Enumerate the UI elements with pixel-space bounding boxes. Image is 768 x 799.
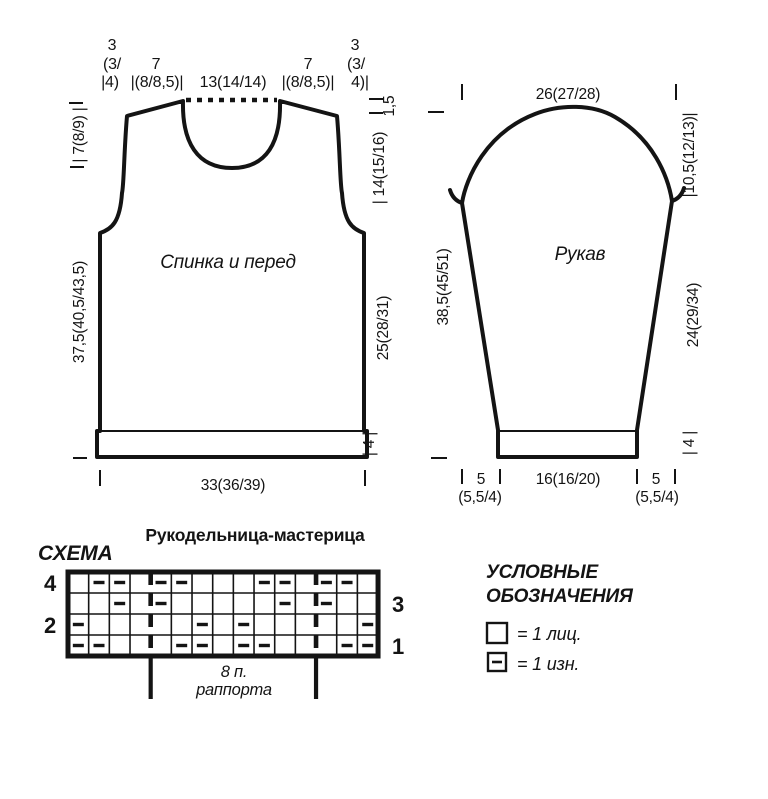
purl-symbol	[176, 644, 187, 647]
purl-symbol	[73, 644, 84, 647]
dim-neck-width: 13(14/14)	[200, 74, 267, 91]
purl-symbol	[259, 581, 270, 584]
dim-sleeve-taper-right-sub: (5,5/4)	[635, 489, 678, 506]
purl-symbol	[321, 581, 332, 584]
purl-symbol	[114, 581, 125, 584]
dim-side-length: 37,5(40,5/43,5)	[71, 261, 88, 363]
purl-symbol	[197, 623, 208, 626]
dim-shoulder-right-1: 7	[304, 56, 313, 73]
legend-item-knit: = 1 лиц.	[517, 624, 581, 644]
purl-symbol	[280, 581, 291, 584]
chart-repeat-label-line2: раппорта	[195, 681, 272, 699]
sleeve-label: Рукав	[555, 244, 606, 265]
purl-symbol	[197, 644, 208, 647]
purl-symbol	[321, 602, 332, 605]
purl-symbol	[238, 644, 249, 647]
dim-shoulder-left-2: |(8/8,5)|	[131, 74, 184, 91]
purl-symbol	[156, 602, 167, 605]
dim-shoulder-edge-left-3: |4)	[101, 74, 119, 91]
purl-symbol	[114, 602, 125, 605]
pattern-diagram: 3 (3/ |4) 7 |(8/8,5)| 13(14/14) 7 |(8/8,…	[0, 0, 768, 799]
dim-shoulder-left-1: 7	[152, 56, 161, 73]
dim-shoulder-edge-right-3: 4)|	[351, 74, 369, 91]
dim-side-height: 25(28/31)	[375, 296, 392, 361]
purl-symbol	[176, 581, 187, 584]
dim-sleeve-cuff-height: | 4 |	[681, 431, 698, 455]
chart-row-number-1: 1	[392, 634, 404, 659]
legend-title-line1: УСЛОВНЫЕ	[486, 562, 599, 583]
legend-item-purl: = 1 изн.	[517, 654, 579, 674]
dim-sleeve-cap-height: |10,5(12/13)|	[681, 113, 698, 198]
purl-symbol	[156, 581, 167, 584]
chart-title: СХЕМА	[38, 542, 113, 565]
dim-sleeve-seam-length: 24(29/34)	[685, 283, 702, 348]
dim-band-height: | 4 |	[361, 432, 378, 456]
knitting-pattern-page: 3 (3/ |4) 7 |(8/8,5)| 13(14/14) 7 |(8/8,…	[0, 0, 768, 799]
dim-sleeve-cuff-width: 16(16/20)	[536, 471, 601, 488]
dim-shoulder-edge-left-1: 3	[108, 37, 117, 54]
dim-sleeve-top-width: 26(27/28)	[536, 86, 601, 103]
purl-symbol	[362, 644, 373, 647]
dim-shoulder-right-2: |(8/8,5)|	[282, 74, 335, 91]
brand-title: Рукодельница-мастерица	[145, 525, 365, 545]
back-front-dimension-ticks	[69, 99, 383, 486]
back-front-label: Спинка и перед	[160, 252, 296, 273]
purl-symbol	[94, 581, 105, 584]
chart-row-number-2: 2	[44, 613, 56, 638]
purl-symbol	[238, 623, 249, 626]
dim-shoulder-edge-right-2: (3/	[347, 56, 366, 73]
legend-title-line2: ОБОЗНАЧЕНИЯ	[486, 586, 634, 607]
purl-symbol	[280, 602, 291, 605]
dim-sleeve-length: 38,5(45/51)	[435, 248, 452, 325]
sleeve-underarm-hook-left	[450, 190, 462, 203]
purl-symbol	[73, 623, 84, 626]
dim-sleeve-taper-left: 5	[477, 471, 485, 488]
dim-shoulder-edge-right-1: 3	[351, 37, 360, 54]
purl-symbol	[259, 644, 270, 647]
purl-symbol	[362, 623, 373, 626]
chart-repeat-label-line1: 8 п.	[221, 663, 248, 681]
purl-symbol	[342, 644, 353, 647]
chart-row-number-3: 3	[392, 592, 404, 617]
dim-shoulder-edge-left-2: (3/	[103, 56, 122, 73]
knit-square-icon	[487, 623, 507, 643]
chart-row-number-4: 4	[44, 571, 57, 596]
back-front-outline	[97, 101, 367, 457]
dim-sleeve-taper-right: 5	[652, 471, 660, 488]
purl-symbol	[342, 581, 353, 584]
purl-symbol	[94, 644, 105, 647]
sleeve-outline	[462, 107, 672, 457]
dim-bottom-width: 33(36/39)	[201, 477, 266, 494]
dim-neck-drop: 1,5	[381, 96, 398, 117]
dim-armhole-height: | 14(15/16)	[371, 132, 388, 205]
dim-armhole-top-left: | 7(8/9) |	[71, 107, 88, 162]
dim-sleeve-taper-left-sub: (5,5/4)	[458, 489, 501, 506]
